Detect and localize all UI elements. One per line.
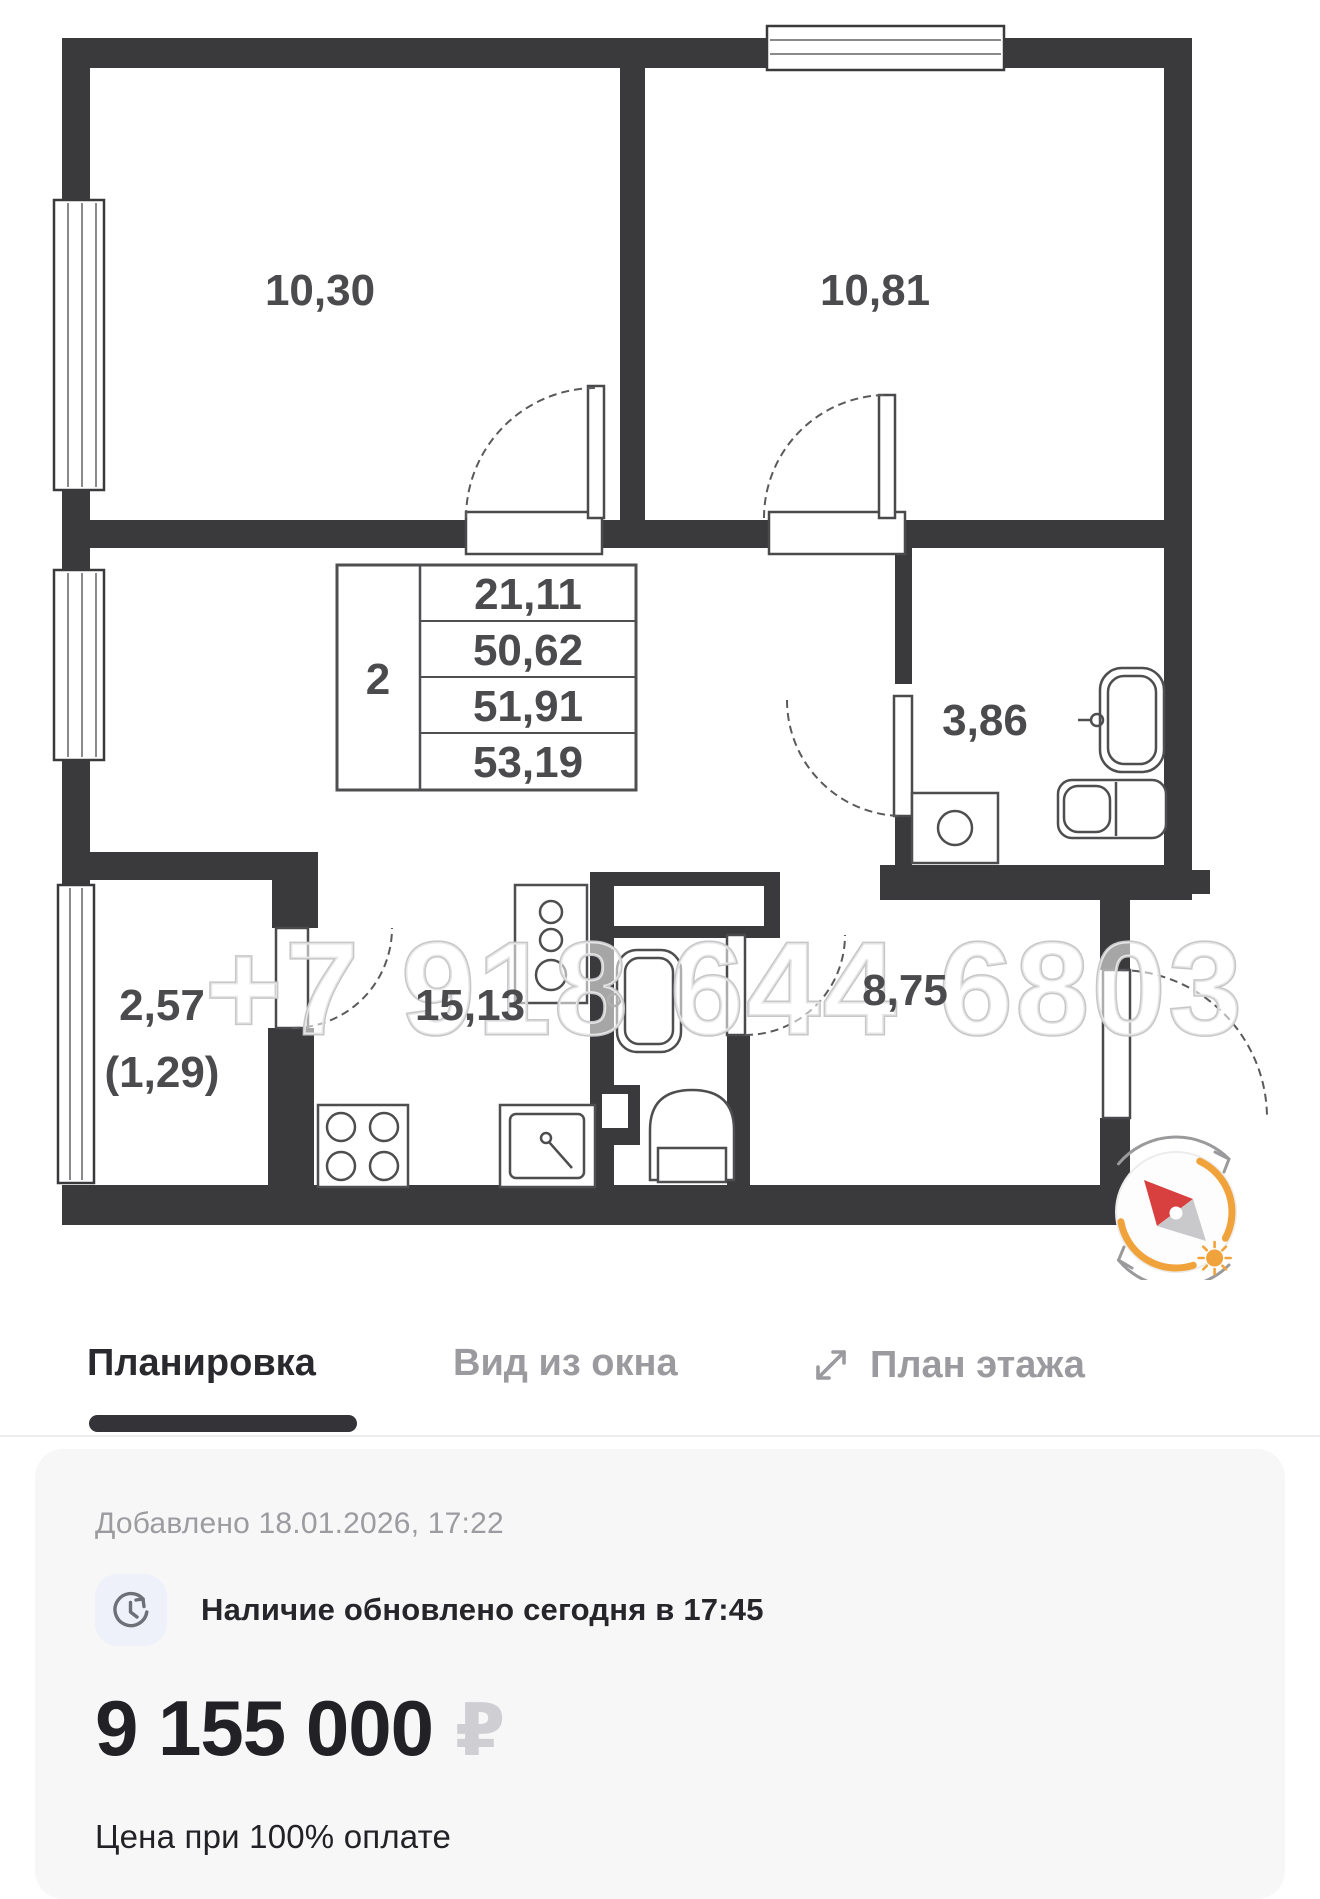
room-label-balcony-reduced: (1,29) (105, 1048, 220, 1097)
area-value: 53,19 (473, 738, 583, 787)
stove-icon (318, 1105, 408, 1187)
balcony-glazing (58, 885, 94, 1183)
expand-icon (808, 1342, 854, 1388)
room-label-bedroom-2: 10,81 (820, 266, 930, 315)
washing-machine-icon (912, 793, 998, 863)
floorplan-image: 2 21,11 50,62 51,91 53,19 +7 918 644 680… (0, 0, 1320, 1280)
price-note: Цена при 100% оплате (95, 1818, 1225, 1856)
area-value: 50,62 (473, 626, 583, 675)
sun-icon (1199, 1242, 1231, 1274)
room-label-hallway: 8,75 (862, 966, 948, 1015)
price-value: 9 155 000 (95, 1688, 433, 1768)
window-living (54, 570, 104, 760)
bathtub-icon (1058, 780, 1166, 838)
rooms-count-value: 2 (366, 655, 390, 704)
tab-bar: Планировка Вид из окна План этажа (0, 1280, 1320, 1437)
window-bedroom-1 (54, 200, 104, 490)
window-top (767, 26, 1004, 70)
active-tab-indicator (89, 1415, 357, 1432)
phone-watermark: +7 918 644 6803 (205, 915, 1245, 1062)
price-row: 9 155 000 ₽ (95, 1688, 1225, 1772)
tab-label: Вид из окна (453, 1342, 678, 1385)
tab-plan-etazha[interactable]: План этажа (808, 1342, 1085, 1388)
details-card: Добавлено 18.01.2026, 17:22 Наличие обно… (35, 1449, 1285, 1899)
room-label-balcony: 2,57 (119, 981, 205, 1030)
tab-label: Планировка (87, 1342, 316, 1385)
tab-planirovka[interactable]: Планировка (87, 1342, 316, 1385)
tab-label: План этажа (870, 1344, 1085, 1387)
toilet-icon (650, 1090, 734, 1182)
availability-row: Наличие обновлено сегодня в 17:45 (95, 1574, 1225, 1646)
room-label-bedroom-1: 10,30 (265, 266, 375, 315)
tab-vid-iz-okna[interactable]: Вид из окна (453, 1342, 678, 1385)
added-date-label: Добавлено 18.01.2026, 17:22 (95, 1507, 1225, 1541)
currency-ruble-sign: ₽ (455, 1688, 505, 1772)
clock-refresh-icon (108, 1587, 154, 1633)
area-value: 21,11 (474, 570, 582, 619)
clock-refresh-badge (95, 1574, 167, 1646)
room-label-bathroom: 3,86 (942, 696, 1028, 745)
plan-summary-table: 2 21,11 50,62 51,91 53,19 (337, 565, 636, 790)
room-label-kitchen: 15,13 (415, 981, 525, 1030)
kitchen-sink-icon (500, 1105, 595, 1187)
area-value: 51,91 (473, 682, 583, 731)
availability-text: Наличие обновлено сегодня в 17:45 (201, 1592, 764, 1628)
